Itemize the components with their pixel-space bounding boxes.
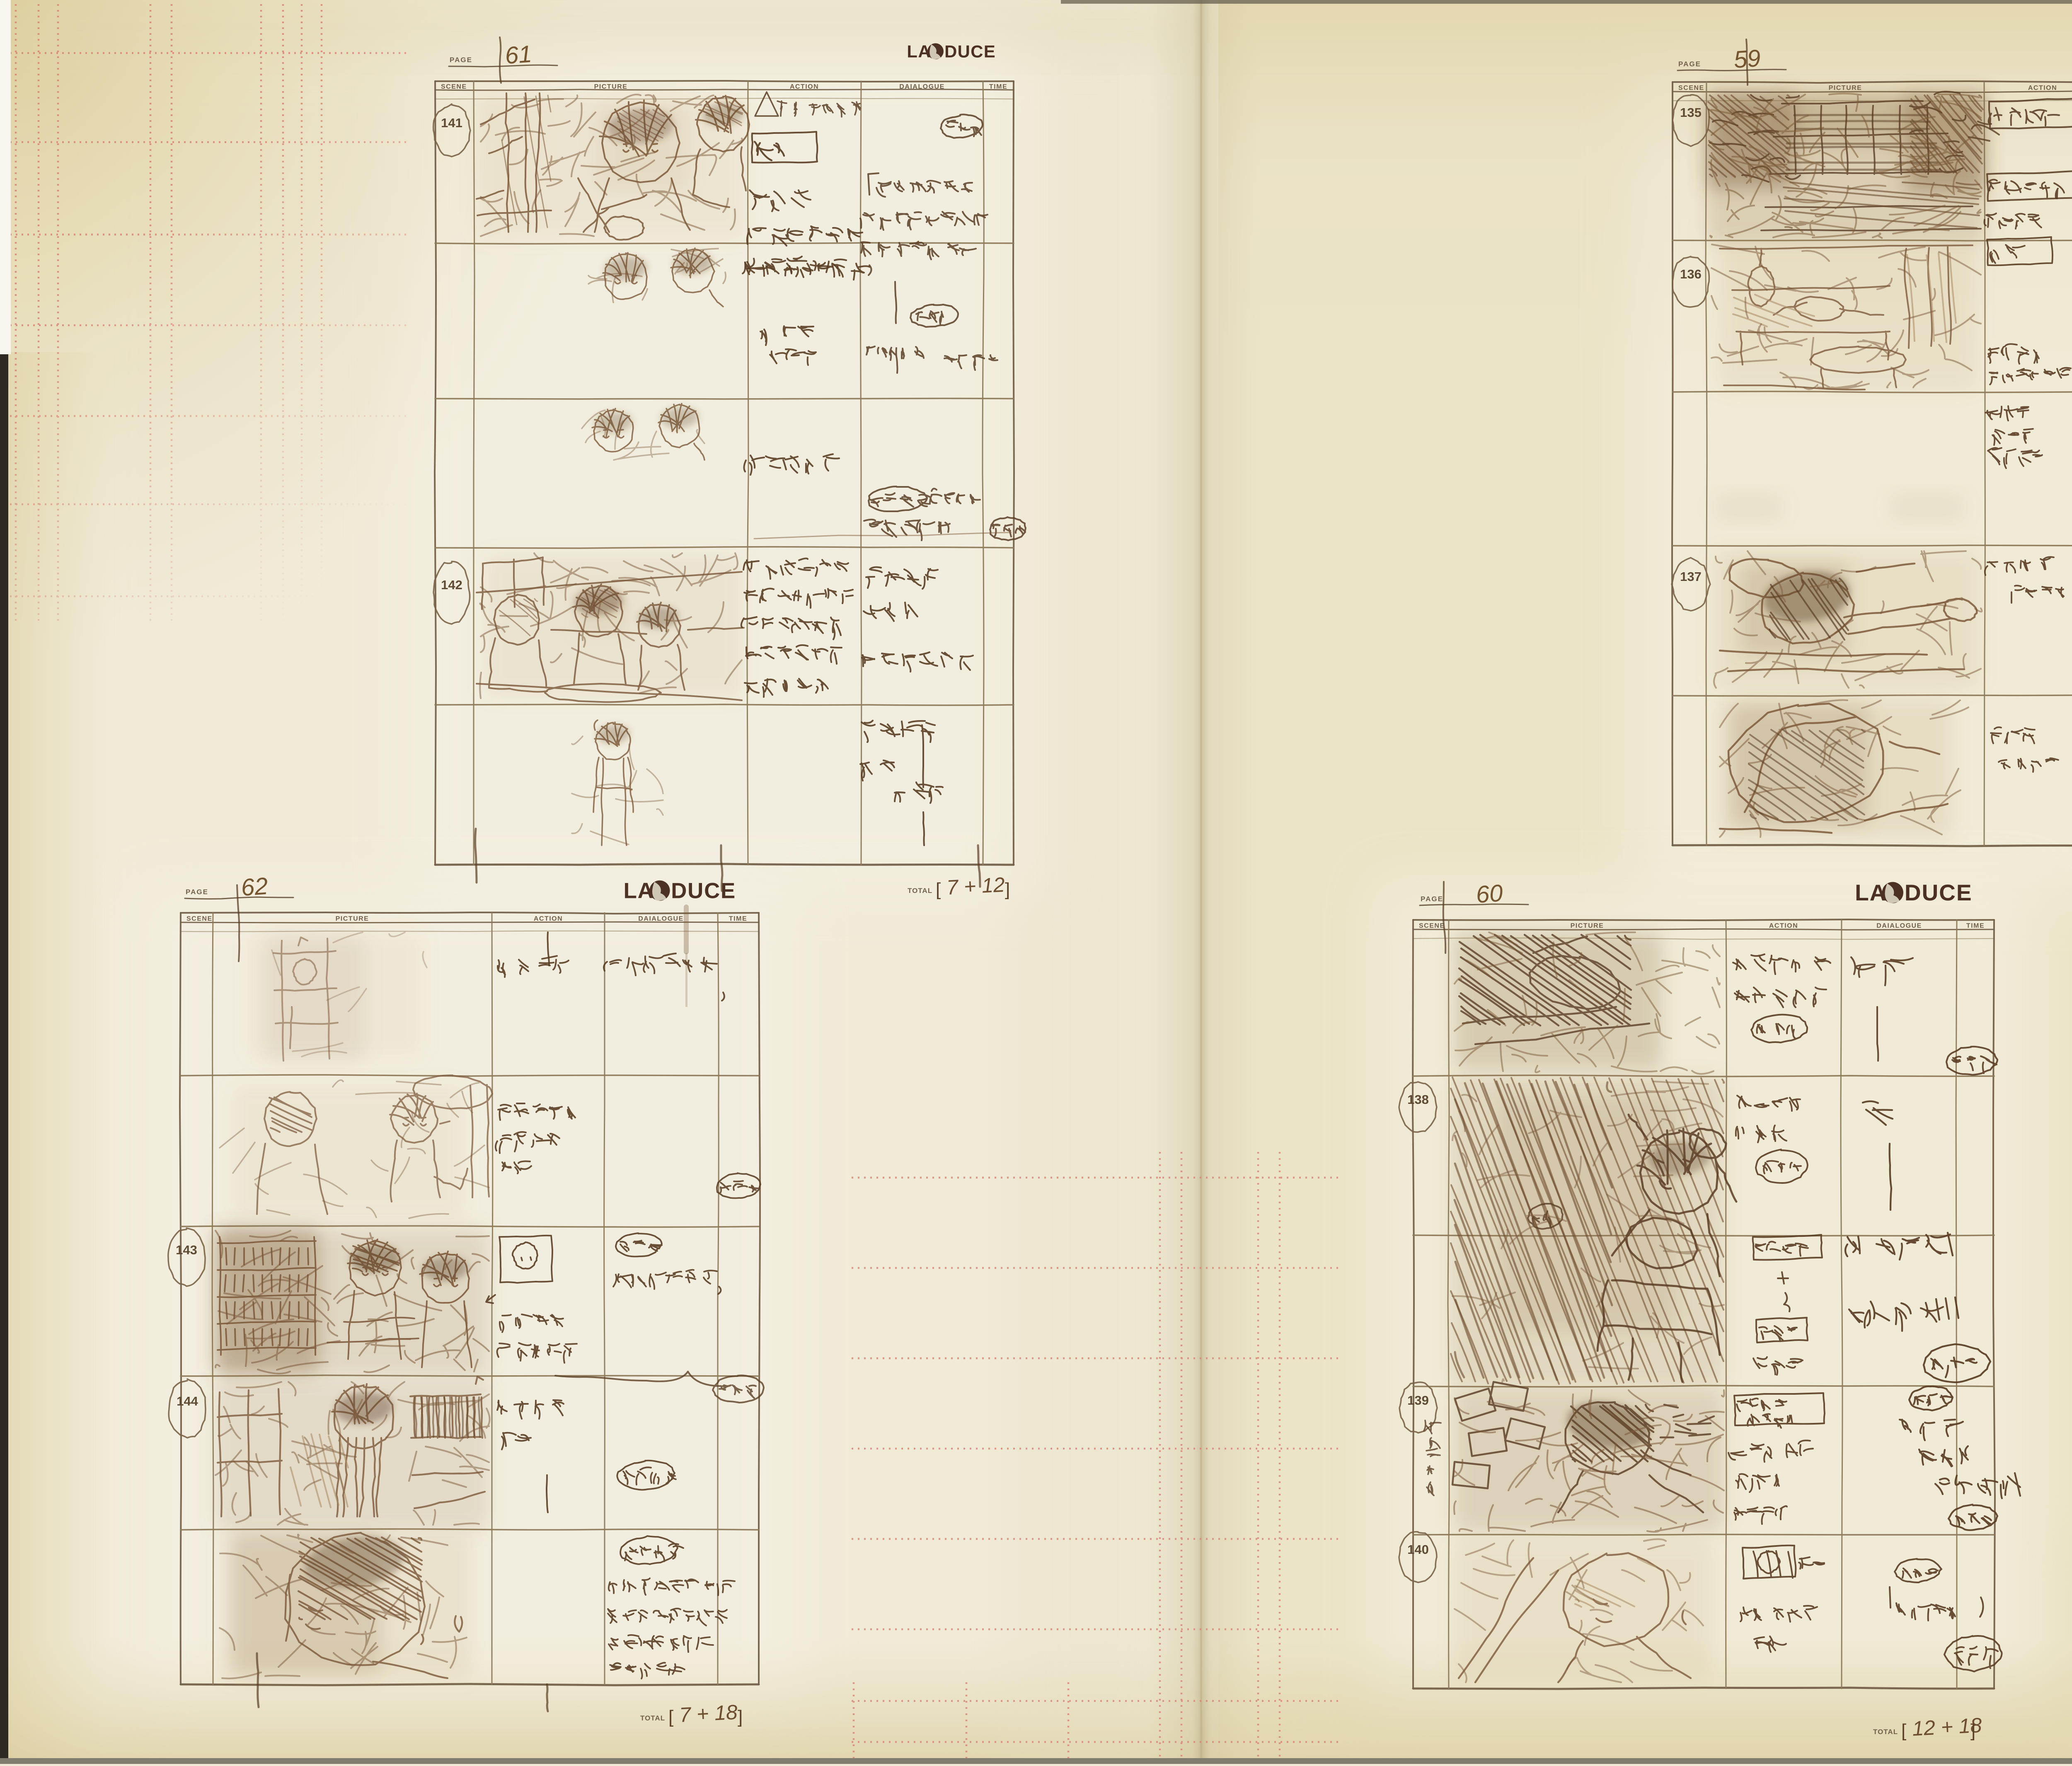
svg-text:7 + 18: 7 + 18 bbox=[679, 1701, 738, 1727]
svg-text:139: 139 bbox=[1407, 1393, 1429, 1408]
svg-text:TIME: TIME bbox=[1966, 922, 1985, 929]
svg-text:ACTION: ACTION bbox=[534, 915, 563, 922]
svg-text:60: 60 bbox=[1475, 880, 1504, 908]
svg-text:143: 143 bbox=[176, 1243, 197, 1257]
svg-text:141: 141 bbox=[441, 116, 462, 130]
svg-text:62: 62 bbox=[240, 873, 269, 901]
svg-text:TOTAL: TOTAL bbox=[640, 1714, 665, 1722]
svg-text:]: ] bbox=[1005, 879, 1010, 900]
svg-text:DUCE: DUCE bbox=[1905, 880, 1973, 905]
svg-text:TIME: TIME bbox=[989, 83, 1007, 90]
svg-text:135: 135 bbox=[1680, 105, 1702, 120]
svg-text:PAGE: PAGE bbox=[186, 888, 208, 896]
svg-text:[: [ bbox=[1901, 1720, 1906, 1741]
svg-text:61: 61 bbox=[504, 41, 533, 69]
svg-text:PICTURE: PICTURE bbox=[1829, 85, 1862, 92]
svg-text:DUCE: DUCE bbox=[671, 878, 736, 903]
svg-text:DUCE: DUCE bbox=[944, 41, 996, 61]
svg-text:]: ] bbox=[738, 1707, 743, 1727]
svg-text:PICTURE: PICTURE bbox=[594, 83, 628, 90]
svg-text:138: 138 bbox=[1407, 1092, 1429, 1107]
svg-text:DAIALOGUE: DAIALOGUE bbox=[638, 915, 684, 922]
svg-text:SCENE: SCENE bbox=[441, 83, 467, 90]
svg-text:144: 144 bbox=[177, 1394, 198, 1408]
svg-text:TOTAL: TOTAL bbox=[1873, 1728, 1898, 1736]
svg-text:ACTION: ACTION bbox=[1769, 922, 1798, 929]
svg-text:]: ] bbox=[1970, 1720, 1975, 1741]
svg-text:PICTURE: PICTURE bbox=[1571, 922, 1604, 929]
svg-text:DAIALOGUE: DAIALOGUE bbox=[899, 83, 945, 90]
svg-text:137: 137 bbox=[1680, 569, 1702, 584]
svg-text:[: [ bbox=[668, 1707, 673, 1727]
svg-text:SCENE: SCENE bbox=[186, 915, 213, 922]
svg-text:[: [ bbox=[936, 879, 941, 900]
svg-text:142: 142 bbox=[441, 578, 462, 592]
svg-text:SCENE: SCENE bbox=[1678, 85, 1704, 92]
svg-text:SCENE: SCENE bbox=[1419, 922, 1445, 929]
svg-text:ACTION: ACTION bbox=[2028, 85, 2057, 92]
svg-text:DAIALOGUE: DAIALOGUE bbox=[1876, 922, 1922, 929]
svg-text:TOTAL: TOTAL bbox=[908, 887, 932, 895]
svg-text:TIME: TIME bbox=[729, 915, 747, 922]
svg-text:140: 140 bbox=[1407, 1542, 1429, 1557]
svg-text:PAGE: PAGE bbox=[1421, 895, 1443, 903]
svg-text:PAGE: PAGE bbox=[450, 56, 472, 64]
svg-text:PAGE: PAGE bbox=[1678, 60, 1701, 68]
svg-text:PICTURE: PICTURE bbox=[336, 915, 369, 922]
svg-text:7 + 12: 7 + 12 bbox=[946, 873, 1005, 899]
svg-text:136: 136 bbox=[1680, 267, 1702, 281]
svg-text:ACTION: ACTION bbox=[790, 83, 819, 90]
